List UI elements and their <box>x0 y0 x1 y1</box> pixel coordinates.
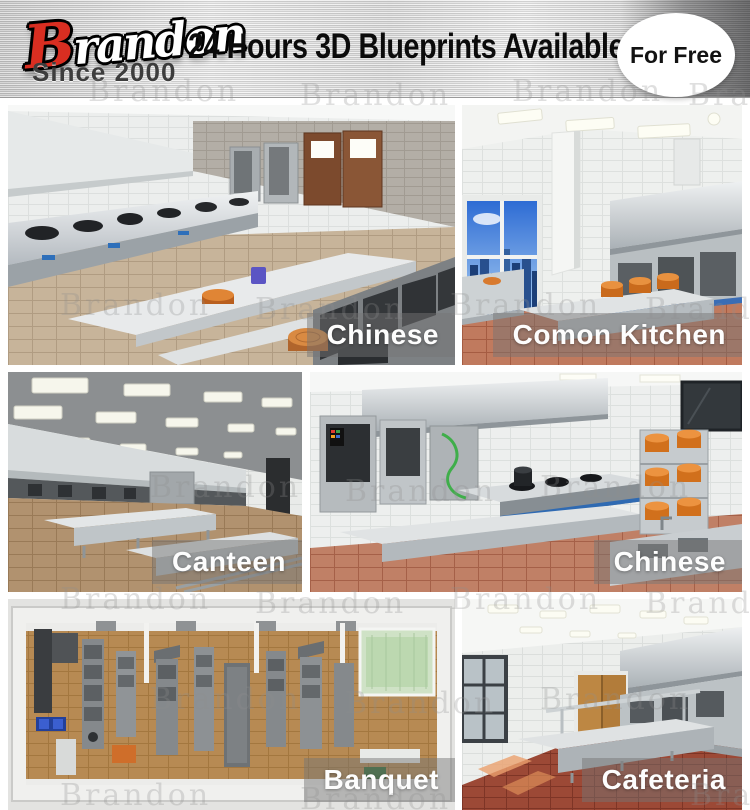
tile-label-chinese-2: Chinese <box>594 540 742 584</box>
gallery-tile-chinese-wok-line: Chinese <box>8 105 455 365</box>
gallery-tile-banquet: Banquet <box>8 599 455 810</box>
for-free-badge: For Free <box>617 13 735 97</box>
tile-label-cafeteria: Cafeteria <box>582 758 742 802</box>
tile-label-comon-kitchen: Comon Kitchen <box>493 313 742 357</box>
gallery-tile-canteen: Canteen <box>8 372 302 592</box>
gallery-tile-comon-kitchen: Comon Kitchen <box>462 105 742 365</box>
gallery-tile-cafeteria: Cafeteria <box>462 599 742 810</box>
tile-label-banquet: Banquet <box>304 758 456 802</box>
promo-page: Brandon Since 2000 24 Hours 3D Blueprint… <box>0 0 750 810</box>
for-free-badge-label: For Free <box>630 42 722 69</box>
tile-label-canteen: Canteen <box>152 540 302 584</box>
header-banner: Brandon Since 2000 24 Hours 3D Blueprint… <box>0 0 750 98</box>
tile-label-chinese-1: Chinese <box>307 313 455 357</box>
gallery-tile-chinese-pots: Chinese <box>310 372 742 592</box>
header-title: 24 Hours 3D Blueprints Available <box>188 27 573 67</box>
brand-since-text: Since 2000 <box>32 57 176 88</box>
